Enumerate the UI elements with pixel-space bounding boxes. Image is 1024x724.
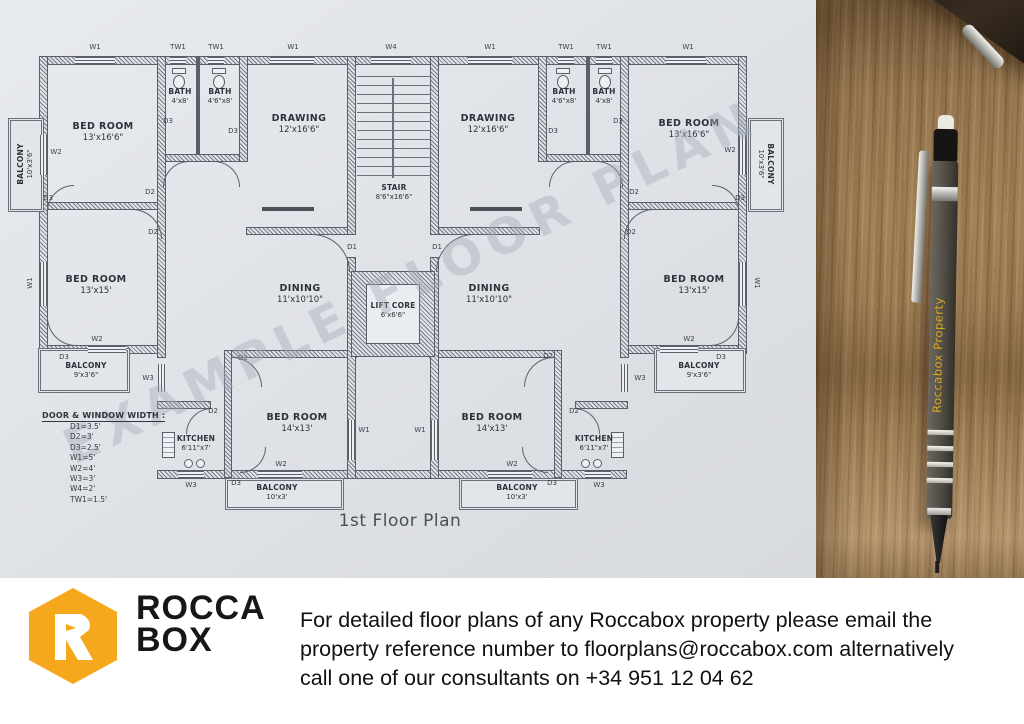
footer-line3: call one of our consultants on +34 951 1… (300, 664, 954, 693)
room-label: BALCONY10'x3'6" (757, 143, 775, 184)
wall (158, 155, 247, 161)
opening-tag: W1 (484, 43, 495, 51)
pencil-brand-text: Roccabox Property (929, 273, 954, 438)
opening-tag: D3 (548, 127, 558, 135)
opening-tag: W3 (593, 481, 604, 489)
door-window-legend: DOOR & WINDOW WIDTH : D1=3.5'D2=3'D3=2.5… (42, 411, 165, 505)
wall (431, 57, 438, 234)
room-label: BED ROOM14'x13' (461, 412, 522, 434)
opening-tag: D3 (231, 479, 241, 487)
wall (430, 351, 561, 357)
room-label-text: 12'x16'6" (461, 125, 516, 135)
wall (348, 57, 355, 234)
room-label: BED ROOM13'x16'6" (72, 121, 133, 143)
room-label-text: 10'x3'6" (26, 143, 34, 184)
window (178, 471, 204, 478)
room-label-text: 9'x3'6" (65, 371, 106, 379)
room-label-text: BED ROOM (461, 412, 522, 423)
room-label: BATH4'x8' (168, 87, 191, 105)
room-label: BALCONY10'x3' (256, 483, 297, 501)
opening-tag: D3 (613, 117, 623, 125)
room-label: BATH4'6"x8' (552, 87, 577, 105)
opening-tag: D3 (163, 117, 173, 125)
opening-tag: W4 (385, 43, 396, 51)
toilet-icon (212, 68, 226, 74)
room-label-text: DRAWING (461, 113, 516, 124)
pencil-ring (927, 446, 953, 451)
window (468, 57, 512, 64)
wordmark-line2: BOX (136, 624, 266, 656)
door-swing (312, 234, 350, 272)
stair-treads (357, 76, 431, 180)
room-label-text: BED ROOM (266, 412, 327, 423)
pencil-ring (927, 478, 953, 483)
room-label: STAIR8'6"x16'6" (376, 183, 413, 201)
room-label-text: BALCONY (256, 483, 297, 492)
window (208, 57, 224, 64)
opening-tag: W1 (753, 277, 761, 288)
room-label: BED ROOM14'x13' (266, 412, 327, 434)
wall (576, 402, 627, 408)
room-label: BED ROOM13'x15' (663, 274, 724, 296)
door-swing (710, 317, 739, 346)
room-label-text: DINING (466, 283, 512, 294)
room-label-text: KITCHEN (177, 434, 215, 443)
pencil-ring (927, 462, 953, 467)
opening-tag: TW1 (558, 43, 574, 51)
footer-band: ROCCA BOX For detailed floor plans of an… (0, 578, 1024, 724)
sink-icon (581, 459, 590, 468)
room-label-text: DINING (277, 283, 323, 294)
window (660, 346, 698, 353)
room-label-text: 10'x3' (496, 493, 537, 501)
wall (247, 228, 355, 234)
opening-tag: W2 (506, 460, 517, 468)
toilet-icon (598, 68, 612, 74)
sink-icon (593, 459, 602, 468)
window (371, 57, 411, 64)
opening-tag: D3 (735, 194, 745, 202)
room-label-text: BALCONY (496, 483, 537, 492)
window (488, 471, 532, 478)
room-label-text: 4'x8' (168, 97, 191, 105)
room-label-text: 4'x8' (592, 97, 615, 105)
opening-tag: D3 (43, 194, 53, 202)
roccabox-pencil: Roccabox Property (878, 114, 1006, 578)
window (621, 364, 628, 392)
opening-tag: D2 (543, 352, 553, 360)
room-label: BALCONY9'x3'6" (65, 361, 106, 379)
room-label-text: KITCHEN (575, 434, 613, 443)
wall (555, 351, 561, 477)
door-swing (214, 161, 240, 187)
window (585, 471, 611, 478)
opening-tag: D3 (716, 353, 726, 361)
room-label: KITCHEN6'11"x7' (575, 434, 613, 452)
footer-line2: property reference number to floorplans@… (300, 635, 954, 664)
opening-tag: W1 (89, 43, 100, 51)
room-label-text: 6'11"x7' (575, 444, 613, 452)
opening-tag: W3 (634, 374, 645, 382)
room-label-text: 12'x16'6" (272, 125, 327, 135)
footer-text: For detailed floor plans of any Roccabox… (300, 606, 954, 693)
door-swing (47, 317, 76, 346)
legend-entry: D3=2.5' (70, 443, 165, 453)
legend-entry: W4=2' (70, 484, 165, 494)
legend-entry: W3=3' (70, 474, 165, 484)
opening-tag: D3 (59, 353, 69, 361)
opening-tag: D3 (228, 127, 238, 135)
footer-line1: For detailed floor plans of any Roccabox… (300, 606, 954, 635)
room-label-text: BALCONY (16, 143, 25, 184)
opening-tag: TW1 (208, 43, 224, 51)
pencil-tip (928, 515, 949, 563)
opening-tag: W1 (26, 277, 34, 288)
opening-tag: D2 (626, 228, 636, 236)
pencil-band (932, 187, 958, 201)
window (258, 471, 302, 478)
floorplan-photo: BED ROOM13'x16'6"BATH4'x8'BATH4'6"x8'DRA… (0, 0, 1024, 578)
room-label: BED ROOM13'x15' (65, 274, 126, 296)
opening-tag: D2 (145, 188, 155, 196)
window (88, 346, 126, 353)
room-label-text: 10'x3'6" (757, 143, 765, 184)
pencil-lead (935, 561, 939, 573)
window (348, 420, 355, 460)
wall (158, 57, 165, 357)
room-label-text: 8'6"x16'6" (376, 193, 413, 201)
room-label-text: 6'11"x7' (177, 444, 215, 452)
room-label: BALCONY10'x3' (496, 483, 537, 501)
room-label-text: 13'x15' (663, 286, 724, 296)
opening-tag: W2 (683, 335, 694, 343)
room-label-text: 13'x16'6" (72, 133, 133, 143)
room-label-text: BED ROOM (72, 121, 133, 132)
room-label: DINING11'x10'10" (466, 283, 512, 305)
room-label-text: 4'6"x8' (552, 97, 577, 105)
window (40, 262, 47, 306)
room-label: DRAWING12'x16'6" (461, 113, 516, 135)
thin-wall (586, 57, 590, 155)
opening-tag: TW1 (170, 43, 186, 51)
legend-entry: W2=4' (70, 464, 165, 474)
room-label-text: BATH (552, 87, 577, 96)
opening-tag: W1 (287, 43, 298, 51)
room-label-text: 14'x13' (461, 424, 522, 434)
room-label-text: BATH (168, 87, 191, 96)
sink-icon (184, 459, 193, 468)
logo-r-glyph (23, 588, 123, 684)
legend-title: DOOR & WINDOW WIDTH : (42, 411, 165, 422)
opening-tag: W3 (185, 481, 196, 489)
window (596, 57, 612, 64)
opening-tag: W2 (50, 148, 61, 156)
opening-tag: D1 (347, 243, 357, 251)
room-label-text: BED ROOM (65, 274, 126, 285)
window (170, 57, 186, 64)
opening-tag: TW1 (596, 43, 612, 51)
door-swing (522, 447, 548, 473)
wall (240, 57, 247, 161)
legend-entry: W1=5' (70, 453, 165, 463)
room-label-text: BALCONY (766, 143, 775, 184)
toilet-icon (172, 68, 186, 74)
pencil-clip (911, 150, 929, 302)
room-label-text: 9'x3'6" (678, 371, 719, 379)
opening-tag: W2 (91, 335, 102, 343)
room-label-text: BATH (208, 87, 233, 96)
window (270, 57, 314, 64)
room-label-text: STAIR (376, 183, 413, 192)
opening-tag: W1 (358, 426, 369, 434)
window (558, 57, 574, 64)
roccabox-logo-icon (23, 588, 123, 684)
opening-tag: W2 (275, 460, 286, 468)
window (431, 420, 438, 460)
beam-mark (262, 207, 314, 211)
opening-tag: W1 (414, 426, 425, 434)
window (739, 262, 746, 306)
roccabox-wordmark: ROCCA BOX (136, 592, 266, 656)
room-label: DRAWING12'x16'6" (272, 113, 327, 135)
door-swing (524, 357, 554, 387)
thin-wall (196, 57, 200, 155)
door-swing (163, 161, 189, 187)
legend-entry: TW1=1.5' (70, 495, 165, 505)
window (40, 135, 47, 175)
floorplan-paper: BED ROOM13'x16'6"BATH4'x8'BATH4'6"x8'DRA… (0, 0, 816, 578)
room-label-text: BALCONY (678, 361, 719, 370)
opening-tag: D2 (148, 228, 158, 236)
plan-title: 1st Floor Plan (339, 511, 462, 531)
sink-icon (196, 459, 205, 468)
room-label: BALCONY10'x3'6" (16, 143, 34, 184)
room-label-text: 4'6"x8' (208, 97, 233, 105)
room-label: BATH4'6"x8' (208, 87, 233, 105)
legend-entry: D1=3.5' (70, 422, 165, 432)
wordmark-line1: ROCCA (136, 592, 266, 624)
room-label-text: 13'x15' (65, 286, 126, 296)
page: BED ROOM13'x16'6"BATH4'x8'BATH4'6"x8'DRA… (0, 0, 1024, 724)
wall (539, 57, 546, 161)
room-label-text: 11'x10'10" (466, 295, 512, 305)
room-label-text: 10'x3' (256, 493, 297, 501)
room-label-text: 14'x13' (266, 424, 327, 434)
toilet-icon (556, 68, 570, 74)
pencil-clicker (933, 129, 958, 163)
opening-tag: W1 (682, 43, 693, 51)
room-label: KITCHEN6'11"x7' (177, 434, 215, 452)
room-label-text: BATH (592, 87, 615, 96)
pencil-ring (928, 430, 954, 435)
room-label-text: DRAWING (272, 113, 327, 124)
room-label: BALCONY9'x3'6" (678, 361, 719, 379)
window (666, 57, 706, 64)
window (75, 57, 115, 64)
room-label-text: BALCONY (65, 361, 106, 370)
room-label: BATH4'x8' (592, 87, 615, 105)
door-swing (240, 447, 266, 473)
opening-tag: D2 (569, 407, 579, 415)
room-label-text: BED ROOM (663, 274, 724, 285)
legend-entry: D2=3' (70, 432, 165, 442)
opening-tag: D3 (547, 479, 557, 487)
pencil-lower-band (927, 508, 951, 515)
stair-rail (392, 78, 394, 178)
